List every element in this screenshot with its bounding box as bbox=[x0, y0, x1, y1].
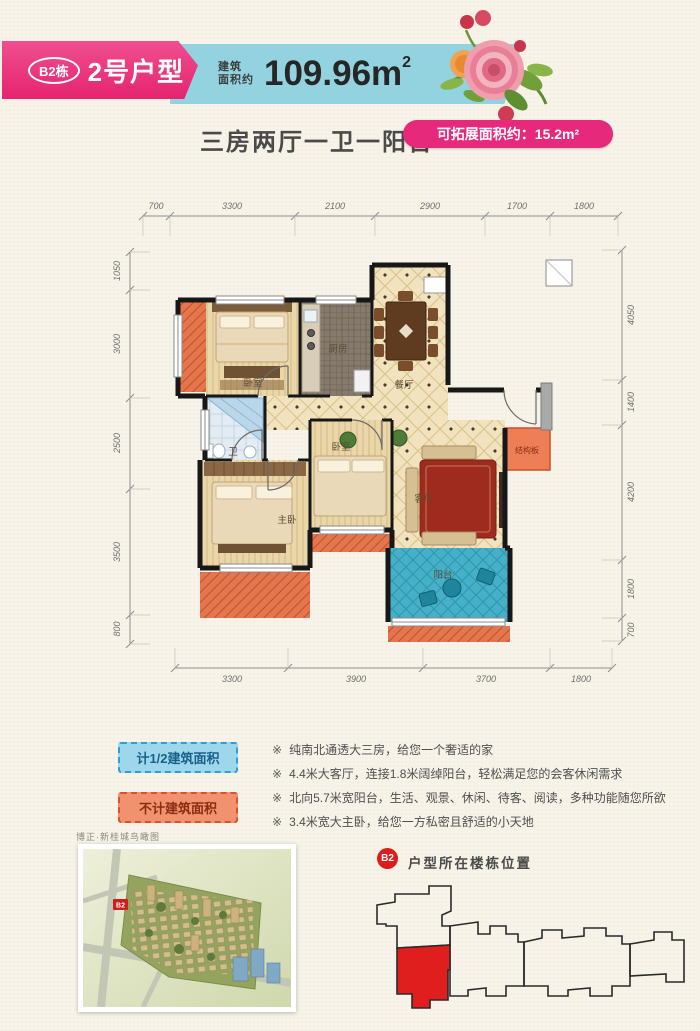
feature-list: ※纯南北通透大三房，给您一个奢适的家 ※4.4米大客厅，连接1.8米阔绰阳台，轻… bbox=[272, 738, 666, 834]
midbed-planter bbox=[312, 534, 390, 552]
building-badge: B2栋 bbox=[28, 57, 80, 84]
building-location-diagram bbox=[372, 882, 692, 1028]
area-label: 建筑 面积约 bbox=[218, 61, 254, 86]
feature-marker: ※ bbox=[272, 743, 282, 757]
dim-label: 2900 bbox=[419, 201, 440, 211]
aerial-caption: 博正·新桂城鸟瞰图 bbox=[76, 830, 160, 843]
feature-item: ※3.4米宽大主卧，给您一方私密且舒适的小天地 bbox=[272, 810, 666, 834]
dim-label: 700 bbox=[148, 201, 163, 211]
dimensions-right: 4050 1400 4200 1800 700 bbox=[602, 246, 636, 645]
dim-label: 4050 bbox=[626, 305, 636, 325]
feature-text: 纯南北通透大三房，给您一个奢适的家 bbox=[289, 743, 493, 757]
dim-label: 2100 bbox=[324, 201, 345, 211]
area-label-line2: 面积约 bbox=[218, 74, 254, 87]
location-badge: B2 bbox=[377, 848, 398, 869]
aerial-b2-marker: B2 bbox=[113, 899, 128, 910]
dim-label: 1800 bbox=[571, 674, 591, 684]
dim-label: 700 bbox=[626, 622, 636, 637]
aerial-rendering: B2 bbox=[83, 849, 291, 1007]
feature-text: 4.4米大客厅，连接1.8米阔绰阳台，轻松满足您的会客休闲需求 bbox=[289, 767, 622, 781]
dim-label: 3300 bbox=[222, 674, 242, 684]
area-superscript: 2 bbox=[402, 54, 411, 71]
dimensions-bottom: 3300 3900 3700 1800 bbox=[171, 648, 616, 684]
area-value: 109.96m2 bbox=[264, 54, 411, 94]
balcony-planter bbox=[388, 626, 510, 642]
dim-label: 3500 bbox=[112, 542, 122, 562]
dim-label: 3900 bbox=[346, 674, 366, 684]
room-label-bedroom-north: 卧室 bbox=[243, 377, 262, 389]
room-label-bedroom-mid: 卧室 bbox=[331, 441, 350, 453]
rose-flower-icon bbox=[428, 8, 568, 128]
dim-label: 1800 bbox=[574, 201, 594, 211]
dim-label: 4200 bbox=[626, 482, 636, 502]
dim-label: 3300 bbox=[222, 201, 242, 211]
room-label-kitchen: 厨房 bbox=[328, 343, 347, 355]
feature-marker: ※ bbox=[272, 767, 282, 781]
expandable-area-badge: 可拓展面积约：15.2m² bbox=[403, 120, 613, 148]
master-planter bbox=[200, 572, 310, 618]
dim-label: 3000 bbox=[112, 334, 122, 354]
dim-label: 2500 bbox=[112, 433, 122, 454]
location-title: 户型所在楼栋位置 bbox=[408, 852, 532, 872]
feature-marker: ※ bbox=[272, 815, 282, 829]
floorplan-drawing: 700 3300 2100 2900 1700 1800 1050 3000 2… bbox=[0, 190, 700, 690]
flyer-page: 建筑 面积约 109.96m2 B2栋 2号户型 bbox=[0, 0, 700, 1031]
unit-ribbon: B2栋 2号户型 bbox=[2, 41, 198, 99]
dim-label: 3700 bbox=[476, 674, 496, 684]
room-label-master: 主卧 bbox=[277, 514, 297, 526]
feature-item: ※4.4米大客厅，连接1.8米阔绰阳台，轻松满足您的会客休闲需求 bbox=[272, 762, 666, 786]
svg-text:B2: B2 bbox=[116, 903, 125, 910]
legend-excluded-area: 不计建筑面积 bbox=[118, 792, 238, 823]
feature-marker: ※ bbox=[272, 791, 282, 805]
dimensions-left: 1050 3000 2500 3500 800 bbox=[112, 248, 150, 648]
feature-text: 北向5.7米宽阳台，生活、观景、休闲、待客、阅读，多种功能随您所欲 bbox=[289, 791, 666, 805]
feature-item: ※北向5.7米宽阳台，生活、观景、休闲、待客、阅读，多种功能随您所欲 bbox=[272, 786, 666, 810]
area-number: 109.96m bbox=[264, 54, 402, 93]
room-label-bath: 卫 bbox=[228, 447, 238, 458]
unit-name: 2号户型 bbox=[88, 52, 184, 89]
room-label-slab: 结构板 bbox=[515, 445, 539, 455]
dim-label: 1800 bbox=[626, 579, 636, 599]
dim-label: 800 bbox=[112, 621, 122, 636]
aerial-photo: B2 bbox=[78, 844, 296, 1012]
highlighted-building-section bbox=[397, 945, 450, 1008]
legend-half-area: 计1/2建筑面积 bbox=[118, 742, 238, 773]
dim-label: 1050 bbox=[112, 261, 122, 281]
feature-text: 3.4米宽大主卧，给您一方私密且舒适的小天地 bbox=[289, 815, 534, 829]
dimensions-top: 700 3300 2100 2900 1700 1800 bbox=[139, 201, 622, 236]
layout-summary: 三房两厅一卫一阳台 bbox=[200, 122, 434, 157]
area-label-line1: 建筑 bbox=[218, 61, 254, 74]
room-label-balcony: 阳台 bbox=[433, 569, 452, 581]
room-label-living: 客厅 bbox=[414, 493, 434, 505]
room-label-dining: 餐厅 bbox=[394, 379, 414, 391]
dim-label: 1400 bbox=[626, 392, 636, 412]
dim-label: 1700 bbox=[507, 201, 527, 211]
feature-item: ※纯南北通透大三房，给您一个奢适的家 bbox=[272, 738, 666, 762]
